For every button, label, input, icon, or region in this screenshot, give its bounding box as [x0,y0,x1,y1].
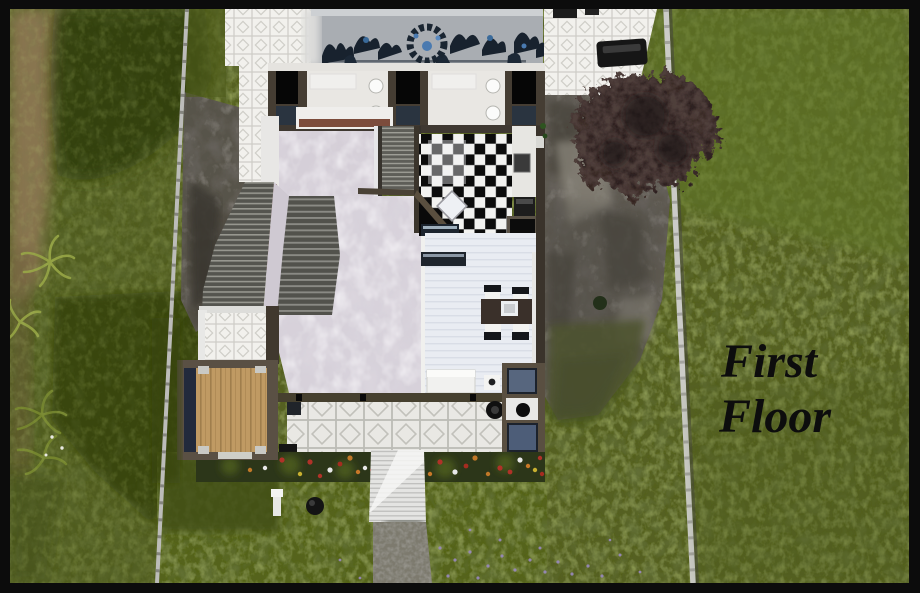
svg-text:Floor: Floor [718,390,832,443]
svg-text:First: First [720,335,819,388]
